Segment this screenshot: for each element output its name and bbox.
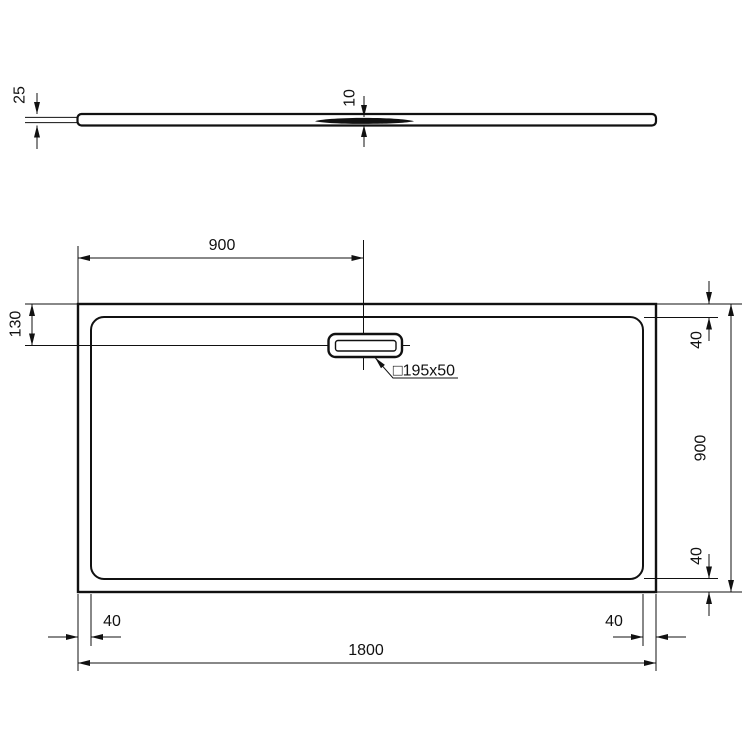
dim-arrow-up: [34, 126, 40, 138]
dimension-drain-center-from-top: 130: [8, 304, 78, 346]
dim-arrow-up: [29, 304, 35, 316]
dim-label-rim-top-right: 40: [689, 331, 706, 349]
dim-arrow-up: [361, 125, 367, 137]
drain-outer-frame: [329, 334, 403, 357]
dim-label-drain-center-from-top: 130: [8, 311, 25, 338]
dim-label-drain-size: □195x50: [393, 363, 455, 380]
dim-label-recess-depth: 10: [342, 89, 359, 107]
drawing-sheet: 25 10 □195x50: [0, 0, 750, 750]
dim-arrow-up: [706, 592, 712, 604]
dimension-rim-bottom-right: 40: [605, 613, 686, 640]
drain-outlet: [329, 334, 403, 357]
dim-arrow-right: [352, 255, 364, 261]
dim-label-rim-bottom-right-side: 40: [689, 547, 706, 565]
dim-label-drain-center-from-left: 900: [209, 237, 236, 254]
dim-arrow-up: [728, 304, 734, 316]
dim-arrow-left: [91, 634, 103, 640]
dim-arrow-right: [66, 634, 78, 640]
dimension-rim-bottom-right-side: 40: [689, 547, 713, 616]
dim-arrow-right: [631, 634, 643, 640]
dim-arrow-down: [706, 292, 712, 304]
dim-arrow-left: [656, 634, 668, 640]
dimension-rim-bottom-left: 40: [48, 613, 121, 640]
dim-arrow-left: [78, 660, 90, 666]
dimension-overall-width: 1800: [78, 642, 656, 666]
plan-view: □195x50 900 130 40: [8, 237, 743, 671]
side-profile-view: 25 10: [12, 86, 657, 149]
dimension-rim-top-right: 40: [689, 281, 713, 349]
dim-label-rim-bottom-right: 40: [605, 613, 623, 630]
dim-arrow-down: [728, 580, 734, 592]
dim-arrow-down: [706, 567, 712, 579]
dim-arrow-down: [34, 102, 40, 114]
dim-arrow-right: [644, 660, 656, 666]
dim-arrow-left: [78, 255, 90, 261]
dim-arrow-down: [29, 334, 35, 346]
dimension-drain-center-from-left: 900: [78, 237, 364, 303]
technical-drawing: 25 10 □195x50: [0, 0, 750, 750]
dim-arrow-up: [706, 318, 712, 330]
dim-label-rim-bottom-left: 40: [103, 613, 121, 630]
dim-label-overall-depth: 900: [693, 435, 710, 462]
dim-label-overall-width: 1800: [348, 642, 384, 659]
dim-label-profile-height: 25: [12, 86, 29, 104]
